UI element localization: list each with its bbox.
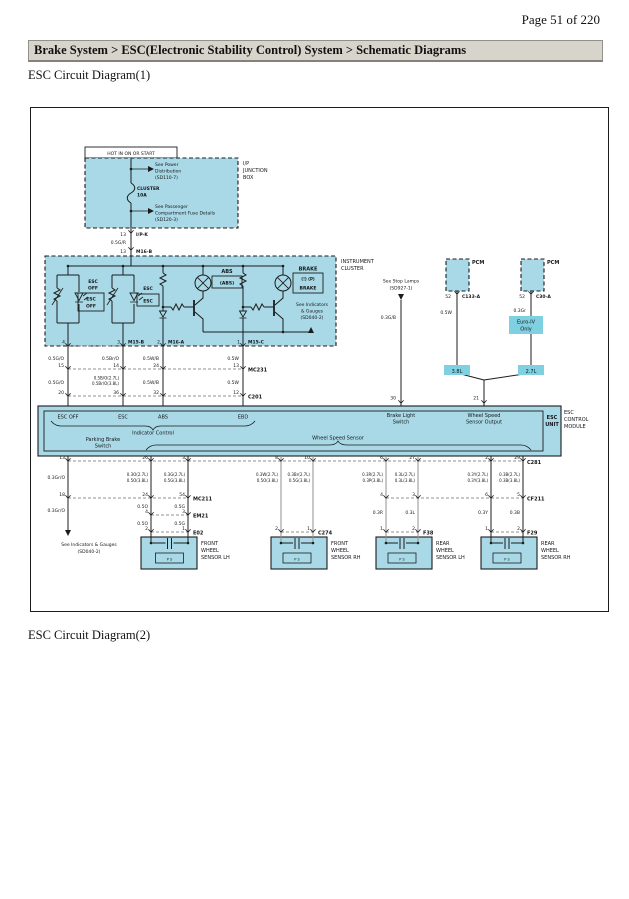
pin-number: 4 <box>62 340 65 346</box>
breadcrumb: Brake System > ESC(Electronic Stability … <box>28 40 603 62</box>
pin-number: 13 <box>120 249 126 255</box>
pin-number: 1 <box>237 340 240 346</box>
ref-stop-lamps: See Stop Lamps <box>383 279 420 285</box>
wire-spec-label: 0.3B(2.7L) <box>499 472 520 477</box>
sensor-label-rr: REAR <box>541 541 555 547</box>
connector-name: C30-A <box>536 294 551 300</box>
pin-number: 8 <box>275 455 278 461</box>
connector-name: M15-B <box>128 340 145 346</box>
wire-color-label: 0.5G/R <box>111 240 126 246</box>
connector-name: MC231 <box>248 368 268 374</box>
brake-label: BRAKE <box>299 267 318 273</box>
pin-number: 20 <box>58 390 64 396</box>
parking-brake-label: Parking Brake <box>86 437 120 443</box>
sensor-label-fl: SENSOR LH <box>201 555 230 561</box>
pin-number: 14 <box>113 363 119 369</box>
pin-number: 2 <box>157 340 160 346</box>
pin-number: 1 <box>485 526 488 532</box>
esc-input-label: ESC <box>118 415 128 421</box>
wire-color-label: 0.3R <box>373 510 383 516</box>
esc-circuit-diagram: HOT IN ON OR START See Power Distributio… <box>31 108 608 611</box>
wire-spec-label: 0.3Y(3.8L) <box>467 478 488 483</box>
esc-input-label: ESC OFF <box>57 415 78 421</box>
sensor-label-fr: FRONT <box>331 541 349 547</box>
wss-label: Wheel Speed Sensor <box>312 436 365 442</box>
brake-light-switch-label: Switch <box>393 420 410 426</box>
wires-gray <box>281 456 418 543</box>
esc-input-label: ABS <box>158 415 168 421</box>
wire-spec-label: 0.3W(2.7L) <box>256 472 278 477</box>
connector-name: C274 <box>318 531 333 537</box>
esc-unit-label: ESC <box>547 415 558 421</box>
connector-name: E02 <box>193 531 204 537</box>
pin-number: 3 <box>182 455 185 461</box>
pin-number: 5 <box>517 492 520 498</box>
esc-module-label: MODULE <box>564 424 586 430</box>
wss-output-label: Sensor Output <box>466 420 502 426</box>
pin-number: 18 <box>59 492 65 498</box>
pin-number: 52 <box>445 294 451 300</box>
pin-number: 30 <box>390 396 396 402</box>
pin-number: 27 <box>409 455 415 461</box>
connector-name: C133-A <box>462 294 481 300</box>
wire-spec-label: 0.3B(3.8L) <box>499 478 520 483</box>
wire-color-label: 0.5G/O <box>48 380 64 386</box>
connector-name: M15-C <box>248 340 265 346</box>
pin-number: 12 <box>233 390 239 396</box>
ref-gauges: (SD040-2) <box>301 315 324 321</box>
wire-spec-label: 0.3Gr/O <box>47 475 65 481</box>
sensor-magnet-mark: P S <box>294 558 300 562</box>
junction-box-label: JUNCTION <box>242 168 268 174</box>
engine-variant-label: 3.8L <box>452 369 463 375</box>
abs-box-label: (ABS) <box>220 281 234 287</box>
connector-name: F38 <box>423 531 434 537</box>
wire-spec-label: 0.5O(3.8L) <box>257 478 279 483</box>
ref-fuse-details: See Passenger <box>155 204 188 210</box>
pin-number: 2 <box>485 455 488 461</box>
sensor-magnet-mark: P S <box>399 558 405 562</box>
page-indicator: Page 51 of 220 <box>522 12 600 28</box>
pin-number: 54 <box>179 492 185 498</box>
connector-name: M16-A <box>168 340 185 346</box>
sensor-label-rr: WHEEL <box>541 548 559 554</box>
pin-number: 3 <box>412 492 415 498</box>
wire-color-label: 0.5W <box>227 356 239 362</box>
pin-number: 26 <box>142 455 148 461</box>
wire-spec-label: 0.3R(2.7L) <box>362 472 383 477</box>
pin-number: 1 <box>182 526 185 532</box>
wire-color-label: 0.5W <box>227 380 239 386</box>
sensor-label-fr: SENSOR RH <box>331 555 361 561</box>
pin-number: 13 <box>233 363 239 369</box>
ref-gauges: See Indicators <box>296 302 329 308</box>
escoff-box-label: OFF <box>86 304 96 310</box>
sensor-label-rl: REAR <box>436 541 450 547</box>
sensor-label-fr: WHEEL <box>331 548 349 554</box>
indicator-control-label: Indicator Control <box>132 431 174 437</box>
engine-variant-label: 2.7L <box>526 369 537 375</box>
wire-spec-label: 0.3G(2.7L) <box>164 472 186 477</box>
pin-number: 52 <box>519 294 525 300</box>
pin-number: 3 <box>117 340 120 346</box>
wire-color-label: 0.5G/O <box>48 356 64 362</box>
wire-spec-label: 0.3L(3.8L) <box>395 478 416 483</box>
euro-iv-label: Only <box>520 327 531 333</box>
pin-number: 2 <box>517 526 520 532</box>
sensor-label-fl: WHEEL <box>201 548 219 554</box>
pcm-box-left <box>446 259 469 291</box>
pin-number: 2 <box>145 526 148 532</box>
connector-name: CF211 <box>527 497 545 503</box>
sensor-label-rl: SENSOR LH <box>436 555 465 561</box>
wire-spec-label: 0.5G(3.8L) <box>164 478 186 483</box>
arrow-down-icon <box>65 530 71 536</box>
pin-number: 24 <box>142 492 148 498</box>
wire-spec-label: 0.3L(2.7L) <box>395 472 416 477</box>
brake-light-switch-label: Brake Light <box>387 413 415 419</box>
abs-label: ABS <box>221 269 233 275</box>
schematic-frame: HOT IN ON OR START See Power Distributio… <box>30 107 609 612</box>
pcm-box-right <box>521 259 544 291</box>
pin-number: 32 <box>153 390 159 396</box>
hot-label: HOT IN ON OR START <box>107 151 155 157</box>
escoff-label: OFF <box>88 286 98 292</box>
pin-number: 10 <box>304 455 310 461</box>
connector-name: C201 <box>248 395 263 401</box>
arrow-down-icon <box>398 294 404 300</box>
pin-number: 1 <box>307 526 310 532</box>
ref-fuse-details: (SD120-3) <box>155 217 178 223</box>
pin-number: 4 <box>145 509 148 515</box>
escoff-box-label: ESC <box>86 297 96 303</box>
pin-number: 24 <box>153 363 159 369</box>
pin-number: 36 <box>113 390 119 396</box>
pin-number: 13 <box>59 455 65 461</box>
cluster-label: INSTRUMENT <box>341 259 375 265</box>
wire-color-label: 0.5Br/O(3.8L) <box>92 381 119 386</box>
sensor-label-rr: SENSOR RH <box>541 555 571 561</box>
pin-number: 6 <box>380 455 383 461</box>
ref-power-dist: See Power <box>155 162 179 168</box>
brake-box-label: BRAKE <box>300 286 317 292</box>
junction-box-label: BOX <box>243 175 254 181</box>
sensor-magnet-mark: P S <box>504 558 510 562</box>
wire-color-label: 0.5W/B <box>143 380 159 386</box>
esc-module-label: CONTROL <box>564 417 589 423</box>
pin-number: 2 <box>275 526 278 532</box>
escoff-label: ESC <box>88 279 98 285</box>
wire-spec-label: 0.5O(3.8L) <box>127 478 149 483</box>
wire-color-label: 0.3B <box>510 510 520 516</box>
sensor-label-rl: WHEEL <box>436 548 454 554</box>
connector-name: F29 <box>527 531 538 537</box>
connector-name: I/P-K <box>136 232 148 238</box>
ref-gauges: & Gauges <box>301 309 324 315</box>
ref-gauges-bottom: See Indicators & Gauges <box>61 542 117 548</box>
pcm-label: PCM <box>547 260 559 266</box>
pin-number: 1 <box>380 526 383 532</box>
pin-number: 21 <box>473 396 479 402</box>
wire-spec-label: 0.3O(2.7L) <box>127 472 149 477</box>
wire-spec-label: 0.3Y(2.7L) <box>467 472 488 477</box>
esc-box-label: ESC <box>143 299 153 305</box>
junction-box-label: I/P <box>243 161 249 167</box>
euro-iv-label: Euro-IV <box>517 320 536 326</box>
pin-number: 6 <box>485 492 488 498</box>
wire-color-label: 0.5Br/O <box>102 356 120 362</box>
wss-output-label: Wheel Speed <box>468 413 501 419</box>
ref-power-dist: (SD110-7) <box>155 175 178 181</box>
pin-number: 13 <box>120 232 126 238</box>
sensor-label-fl: FRONT <box>201 541 219 547</box>
ref-stop-lamps: (SD927-1) <box>390 286 413 292</box>
wire-color-label: 0.3Gr <box>514 308 527 314</box>
pin-number: 2 <box>412 526 415 532</box>
connector-name: MC211 <box>193 497 213 503</box>
wire-color-label: 0.3Y <box>478 510 488 516</box>
parking-brake-label: Switch <box>95 444 112 450</box>
pin-number: 3 <box>182 509 185 515</box>
wire-color-label: 0.3L <box>405 510 415 516</box>
esc-unit-label: UNIT <box>545 422 559 428</box>
fuse-name: CLUSTER <box>137 186 160 192</box>
esc-module-label: ESC <box>564 410 574 416</box>
pin-number: 4 <box>380 492 383 498</box>
wire-spec-label: 0.5G(3.8L) <box>289 478 311 483</box>
ref-fuse-details: Compartment Fuse Details <box>155 211 216 217</box>
wire-spec-label: 0.3P(3.8L) <box>363 478 384 483</box>
pin-number: 29 <box>514 455 520 461</box>
connector-name: M16-B <box>136 249 153 255</box>
fuse-rating: 10A <box>137 193 147 199</box>
ref-gauges-bottom: (SD040-2) <box>78 549 101 555</box>
wire-color-label: 0.3Gr/O <box>47 508 65 514</box>
connector-name: C281 <box>527 460 542 466</box>
brake-box-label: (!) (P) <box>301 277 315 282</box>
section-title-2: ESC Circuit Diagram(2) <box>28 628 150 643</box>
wire-color-label: 0.3G/B <box>381 315 396 321</box>
esc-input-label: EBD <box>238 415 249 421</box>
connector-name: EM21 <box>193 514 209 520</box>
wire-color-label: 0.5W/B <box>143 356 159 362</box>
wire-color-label: 0.5B/O(2.7L) <box>94 376 120 381</box>
cluster-label: CLUSTER <box>341 266 364 272</box>
ref-power-dist: Distribution <box>155 169 181 175</box>
section-title-1: ESC Circuit Diagram(1) <box>28 68 150 83</box>
esc-label: ESC <box>143 286 153 292</box>
sensor-magnet-mark: P S <box>167 558 173 562</box>
pcm-label: PCM <box>472 260 484 266</box>
pin-number: 15 <box>58 363 64 369</box>
wire-color-label: 0.5W <box>440 310 452 316</box>
wire-spec-label: 0.3Br(2.7L) <box>288 472 311 477</box>
